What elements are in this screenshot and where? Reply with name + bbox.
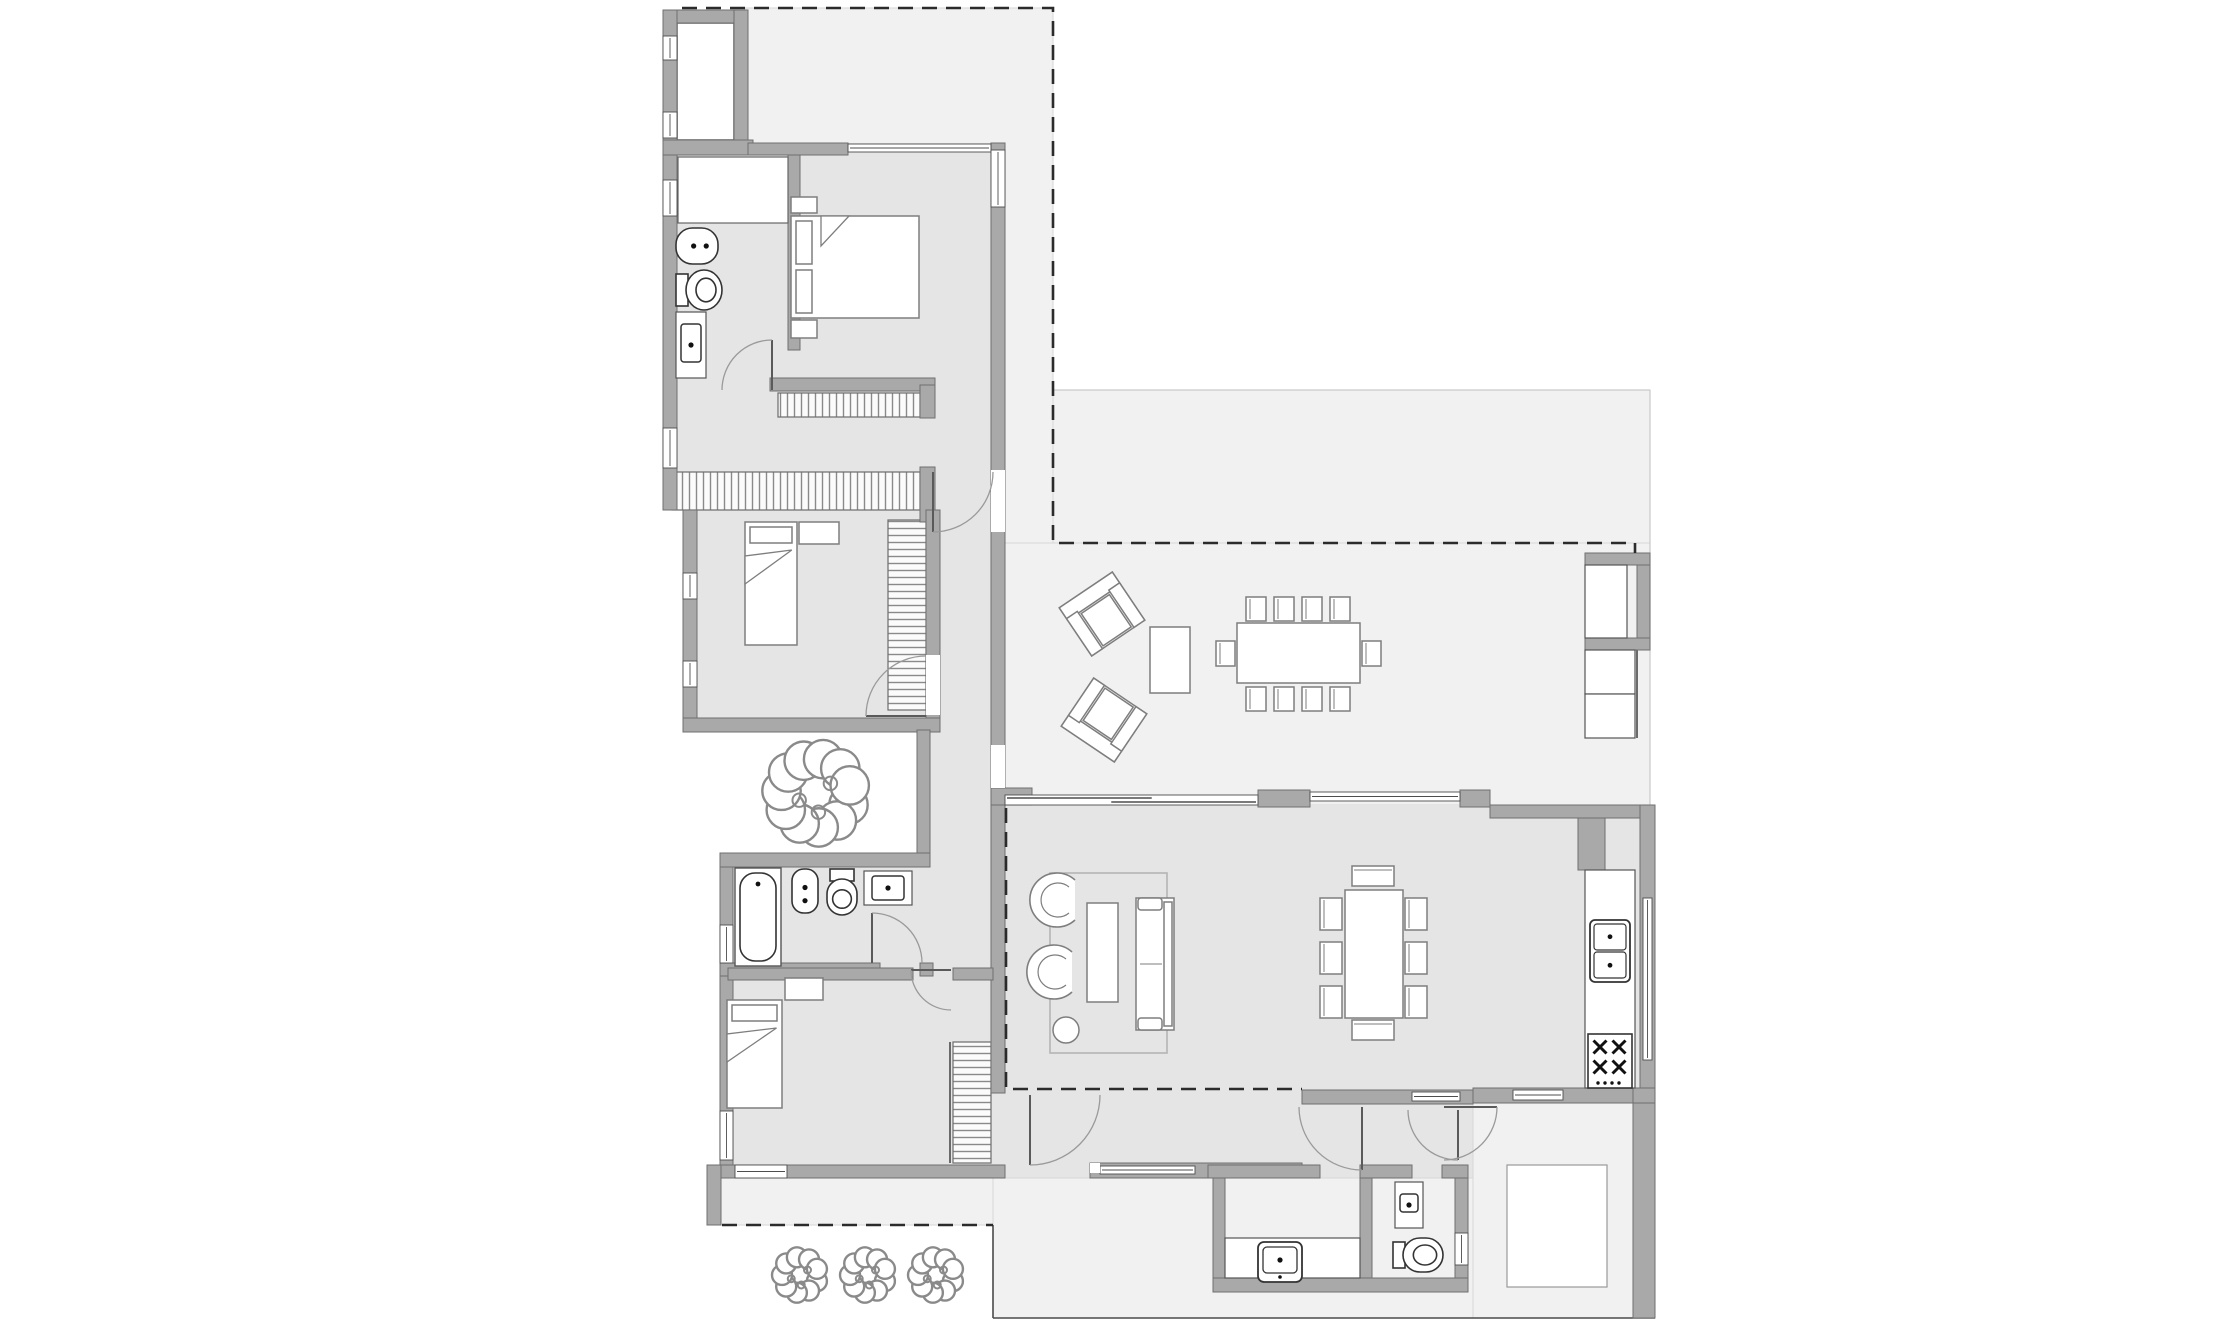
bedroom2-bed bbox=[745, 522, 797, 645]
living-coffee-table bbox=[1087, 903, 1118, 1002]
right-band bbox=[1633, 1103, 1655, 1318]
bath2-top bbox=[720, 853, 930, 867]
bed2-left bbox=[683, 510, 697, 732]
terrace-chair bbox=[1330, 597, 1350, 621]
bedroom3-nightstand bbox=[785, 978, 823, 1000]
master-vanity bbox=[676, 312, 706, 378]
dot bbox=[704, 243, 709, 248]
master-toilet bbox=[676, 270, 722, 310]
slide-pier bbox=[1258, 790, 1310, 807]
hall-wardrobe bbox=[672, 472, 920, 510]
storage-interior-outline bbox=[677, 23, 734, 140]
dot bbox=[1406, 1202, 1411, 1207]
living-curved-chair-1 bbox=[1030, 873, 1075, 927]
dot bbox=[688, 342, 693, 347]
dot bbox=[1608, 934, 1613, 939]
living-opening bbox=[991, 745, 1005, 788]
utility-top-c bbox=[1442, 1165, 1468, 1178]
living-side-table bbox=[1053, 1017, 1079, 1043]
patch-left-1 bbox=[663, 510, 683, 735]
kitchen-sink bbox=[1590, 920, 1630, 982]
living-side-table bbox=[1053, 1017, 1079, 1043]
terrace-chair bbox=[1330, 687, 1350, 711]
shrub-1 bbox=[772, 1247, 827, 1302]
terrace-bench-2 bbox=[1585, 694, 1635, 738]
utility-left bbox=[1213, 1178, 1225, 1280]
terrace-chair-seat bbox=[1246, 597, 1266, 621]
terrace-chair bbox=[1302, 597, 1322, 621]
terrace-bench-2-top bbox=[1585, 694, 1635, 738]
dining-chair-seat bbox=[1320, 942, 1342, 974]
living-sofa-back bbox=[1164, 902, 1172, 1026]
dining-chair bbox=[1320, 986, 1342, 1018]
dot bbox=[802, 898, 807, 903]
master-bidet-bowl bbox=[676, 228, 718, 264]
bedroom2-nightstand bbox=[799, 522, 839, 544]
terrace-chair bbox=[1274, 597, 1294, 621]
dining-chair bbox=[1352, 1020, 1394, 1040]
master-bed-pillow-1 bbox=[796, 221, 812, 264]
master-bed-pillow-2 bbox=[796, 270, 812, 313]
bath2-toilet-bowl bbox=[827, 879, 857, 915]
utility-bottom bbox=[1213, 1278, 1468, 1292]
bbq-bottom bbox=[1585, 638, 1650, 650]
dot bbox=[1278, 1275, 1282, 1279]
bedroom2-bed-pillow bbox=[750, 527, 792, 543]
kitchen-nw bbox=[1578, 818, 1605, 870]
master-nightstand-1 bbox=[791, 197, 817, 213]
dining-chair-seat bbox=[1405, 942, 1427, 974]
terrace-chair-seat bbox=[1274, 597, 1294, 621]
east-wall bbox=[991, 155, 1005, 1093]
master-bed bbox=[791, 216, 919, 318]
bath2-toilet bbox=[827, 869, 857, 915]
terrace-dining-table-top bbox=[1237, 623, 1360, 683]
bedroom3-bed bbox=[727, 1000, 782, 1108]
dining-chair-seat bbox=[1352, 1020, 1394, 1040]
living-sofa-arm-bottom bbox=[1138, 1018, 1162, 1030]
garage-pad-outline bbox=[1507, 1165, 1607, 1287]
bed2-door-gap bbox=[926, 655, 940, 715]
bath2-tub bbox=[735, 868, 781, 966]
master-nightstand-2 bbox=[791, 320, 817, 338]
kitchen-stove bbox=[1588, 1034, 1632, 1088]
terrace-coffee-table-top bbox=[1150, 627, 1190, 693]
dot bbox=[802, 885, 807, 890]
stairs bbox=[953, 1042, 991, 1163]
terrace-coffee-table bbox=[1150, 627, 1190, 693]
slide-wall-r bbox=[1460, 790, 1490, 807]
dining-table-top bbox=[1345, 890, 1403, 1018]
dining-chair bbox=[1405, 942, 1427, 974]
terrace-chair-seat bbox=[1330, 597, 1350, 621]
terrace-dining-table bbox=[1237, 623, 1360, 683]
shrub-3 bbox=[908, 1247, 963, 1302]
terrace-chair-end bbox=[1216, 641, 1235, 666]
dining-chair-seat bbox=[1320, 898, 1342, 930]
terrace-chair bbox=[1274, 687, 1294, 711]
floor-plan-page bbox=[0, 0, 2228, 1335]
kitchen-stove-knob bbox=[1596, 1081, 1599, 1084]
sliding-door bbox=[1005, 795, 1258, 805]
floor-plan-drawing bbox=[0, 0, 2228, 1335]
terrace-chair-seat bbox=[1330, 687, 1350, 711]
living-curved-chair-2-back bbox=[1027, 945, 1072, 999]
bedroom3-nightstand bbox=[785, 978, 823, 1000]
dining-chair bbox=[1320, 898, 1342, 930]
utility-top-a bbox=[1208, 1165, 1320, 1178]
living-coffee-table-top bbox=[1087, 903, 1118, 1002]
dining-chair bbox=[1352, 866, 1394, 886]
dining-table bbox=[1345, 890, 1403, 1018]
bedroom2-nightstand bbox=[799, 522, 839, 544]
dining-chair-seat bbox=[1405, 986, 1427, 1018]
living-curved-chair-1-back bbox=[1030, 873, 1075, 927]
kitchen-stove-knob bbox=[1610, 1081, 1613, 1084]
master-shower bbox=[678, 157, 788, 223]
shrub-2 bbox=[840, 1247, 895, 1302]
terrace-chair bbox=[1246, 687, 1266, 711]
bbq-top bbox=[1585, 553, 1650, 565]
dot bbox=[691, 243, 696, 248]
terrace-chair-end-seat bbox=[1362, 641, 1381, 666]
master-nightstand-2 bbox=[791, 320, 817, 338]
master-shower-tray bbox=[678, 157, 788, 223]
bath2-vanity bbox=[864, 871, 912, 905]
terrace-bench-1 bbox=[1585, 650, 1635, 694]
dining-chair bbox=[1405, 898, 1427, 930]
bath2-bidet bbox=[792, 869, 818, 913]
terrace-chair-seat bbox=[1274, 687, 1294, 711]
storage-bottom bbox=[663, 140, 753, 155]
dot bbox=[885, 885, 890, 890]
master-bottom bbox=[770, 378, 935, 391]
dining-chair bbox=[1405, 986, 1427, 1018]
terrace-chair-seat bbox=[1302, 597, 1322, 621]
bed2-wardrobe bbox=[888, 520, 926, 710]
powder-sink bbox=[1395, 1182, 1423, 1228]
living-curved-chair-2 bbox=[1027, 945, 1072, 999]
dot bbox=[756, 882, 761, 887]
porch-corner bbox=[707, 1165, 721, 1225]
storage-right bbox=[734, 10, 748, 143]
terrace-chair-end-seat bbox=[1216, 641, 1235, 666]
courtyard-right bbox=[917, 730, 930, 853]
bed3-top-b bbox=[953, 968, 993, 980]
garden-steps bbox=[778, 393, 920, 417]
kitchen-stove-knob bbox=[1603, 1081, 1606, 1084]
bedroom3-bed-pillow bbox=[732, 1005, 777, 1021]
terrace-bench-1-top bbox=[1585, 650, 1635, 694]
terrace-chair-seat bbox=[1246, 687, 1266, 711]
kitchen-stove-knob bbox=[1617, 1081, 1620, 1084]
dining-chair bbox=[1320, 942, 1342, 974]
master-bidet bbox=[676, 228, 718, 264]
master-nightstand-1 bbox=[791, 197, 817, 213]
terrace-chair-seat bbox=[1302, 687, 1322, 711]
powder-toilet bbox=[1393, 1238, 1443, 1272]
dining-chair-seat bbox=[1352, 866, 1394, 886]
utility-top-b bbox=[1360, 1165, 1412, 1178]
bed2-bottom bbox=[683, 718, 940, 732]
bath2-bidet-bowl bbox=[792, 869, 818, 913]
dot bbox=[1277, 1257, 1282, 1262]
patio-right bbox=[1053, 390, 1650, 543]
terrace-chair bbox=[1246, 597, 1266, 621]
step-wall bbox=[920, 385, 935, 418]
kitchen-top-wall bbox=[1490, 805, 1655, 818]
dining-chair-seat bbox=[1405, 898, 1427, 930]
bbq-inner bbox=[1585, 565, 1627, 638]
dining-chair-seat bbox=[1320, 986, 1342, 1018]
laundry-sink bbox=[1258, 1242, 1302, 1282]
kitchen-bottom-corner bbox=[1633, 1088, 1655, 1103]
utility-divider bbox=[1360, 1178, 1372, 1278]
dot bbox=[1608, 963, 1613, 968]
bbq-right bbox=[1637, 565, 1650, 650]
terrace-chair bbox=[1302, 687, 1322, 711]
terrace-chair-end bbox=[1362, 641, 1381, 666]
living-sofa bbox=[1136, 898, 1174, 1030]
bbq-inner-top bbox=[1585, 565, 1627, 638]
hall-white-post bbox=[1090, 1163, 1100, 1173]
master-top bbox=[748, 143, 848, 155]
living-sofa-arm-top bbox=[1138, 898, 1162, 910]
porch bbox=[707, 1178, 993, 1225]
